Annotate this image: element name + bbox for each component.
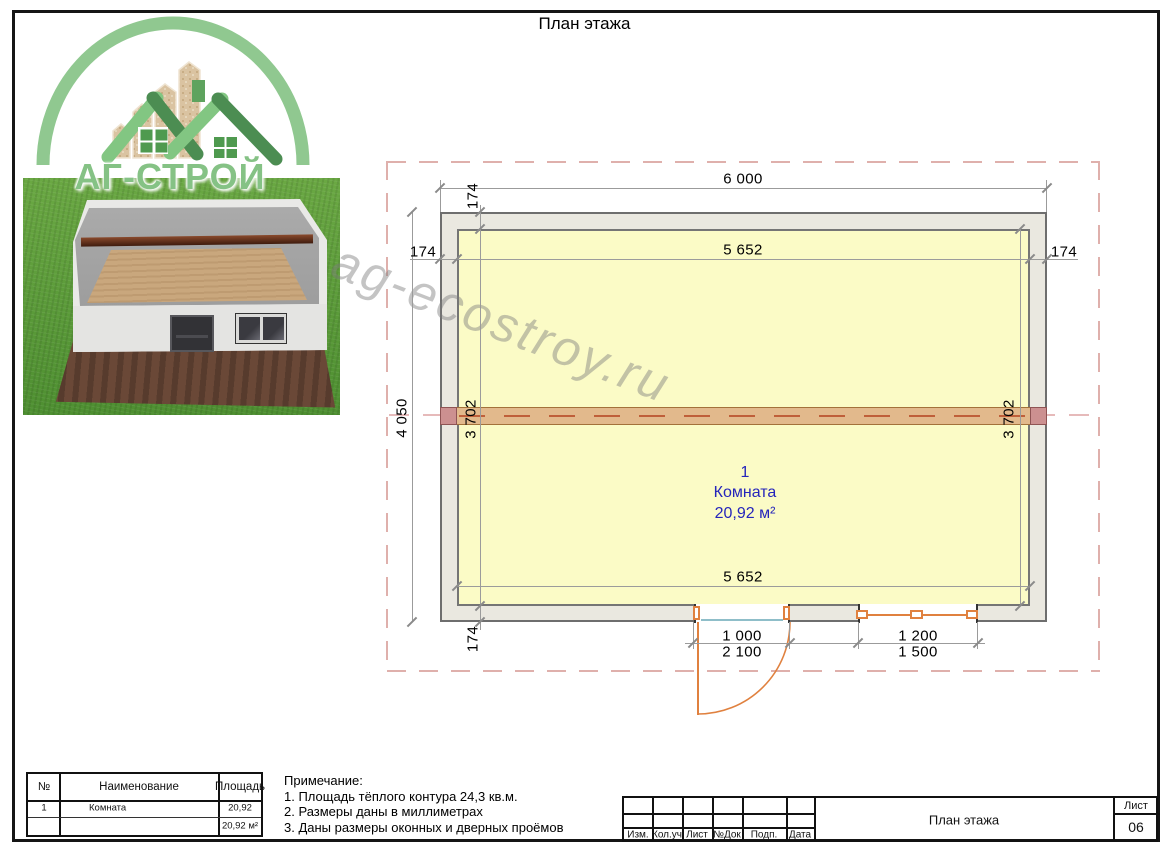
- dim-wall-right: 174: [1051, 244, 1077, 261]
- title-block-col-izm: Изм.: [627, 830, 648, 841]
- sheet-label: Лист: [1124, 800, 1148, 812]
- room-name: Комната: [714, 484, 777, 502]
- dim-line: [412, 212, 413, 622]
- table-row-name: Комната: [89, 803, 126, 814]
- table-header-area: Площадь: [215, 781, 265, 793]
- dim-extension-line: [693, 622, 694, 649]
- title-block-divider: [1113, 813, 1160, 815]
- dim-inner-width-bottom: 5 652: [723, 569, 763, 586]
- note-item: 1. Площадь тёплого контура 24,3 кв.м.: [284, 789, 563, 805]
- dim-window-height: 1 500: [898, 644, 938, 661]
- notes: Примечание: 1. Площадь тёплого контура 2…: [284, 773, 563, 835]
- room-number: 1: [741, 464, 750, 482]
- title-block-divider: [624, 813, 814, 815]
- table-total-area: 20,92 м²: [222, 821, 258, 832]
- table-header-name: Наименование: [99, 781, 179, 793]
- dim-inner-height-left: 3 702: [463, 399, 480, 439]
- dim-line: [1020, 229, 1021, 606]
- dim-window-width: 1 200: [898, 628, 938, 645]
- table-divider: [28, 817, 261, 818]
- dim-inner-height-right: 3 702: [1001, 399, 1018, 439]
- notes-title: Примечание:: [284, 773, 563, 789]
- dim-line: [440, 188, 1047, 189]
- dim-wall-bottom: 174: [465, 626, 482, 652]
- title-block-divider: [786, 798, 788, 840]
- dim-inner-width-top: 5 652: [723, 242, 763, 259]
- table-divider: [28, 800, 261, 802]
- door-swing-arc: [0, 0, 1169, 849]
- table-row-area: 20,92: [228, 803, 252, 814]
- table-divider: [59, 774, 61, 835]
- dim-door-width: 1 000: [722, 628, 762, 645]
- dim-wall-left: 174: [410, 244, 436, 261]
- dim-line: [457, 586, 1030, 587]
- sheet-number: 06: [1128, 819, 1144, 835]
- table-header-num: №: [38, 781, 50, 793]
- note-item: 3. Даны размеры оконных и дверных проёмо…: [284, 820, 563, 836]
- dim-line: [410, 259, 1078, 260]
- title-block: Изм. Кол.уч Лист №Док Подп. Дата План эт…: [622, 796, 1158, 842]
- dim-overall-height: 4 050: [394, 398, 411, 438]
- title-block-col-dok: №Док: [713, 830, 741, 841]
- dim-line: [480, 205, 481, 630]
- note-item: 2. Размеры даны в миллиметрах: [284, 804, 563, 820]
- room-area: 20,92 м²: [715, 505, 776, 523]
- dim-overall-width: 6 000: [723, 171, 763, 188]
- title-block-divider: [742, 798, 744, 840]
- title-block-doc-name: План этажа: [929, 813, 999, 828]
- title-block-col-koluch: Кол.уч: [652, 830, 682, 841]
- table-row-num: 1: [41, 803, 46, 814]
- title-block-divider: [1113, 798, 1115, 840]
- title-block-col-podp: Подп.: [751, 830, 778, 841]
- dim-door-height: 2 100: [722, 644, 762, 661]
- rooms-table: № Наименование Площадь 1 Комната 20,92 2…: [26, 772, 263, 837]
- dim-extension-line: [858, 622, 859, 649]
- title-block-divider: [814, 798, 816, 840]
- drawing-sheet: План этажа: [0, 0, 1169, 849]
- title-block-col-list: Лист: [686, 830, 708, 841]
- title-block-col-data: Дата: [789, 830, 811, 841]
- dim-wall-top: 174: [465, 183, 482, 209]
- title-block-divider: [682, 798, 684, 840]
